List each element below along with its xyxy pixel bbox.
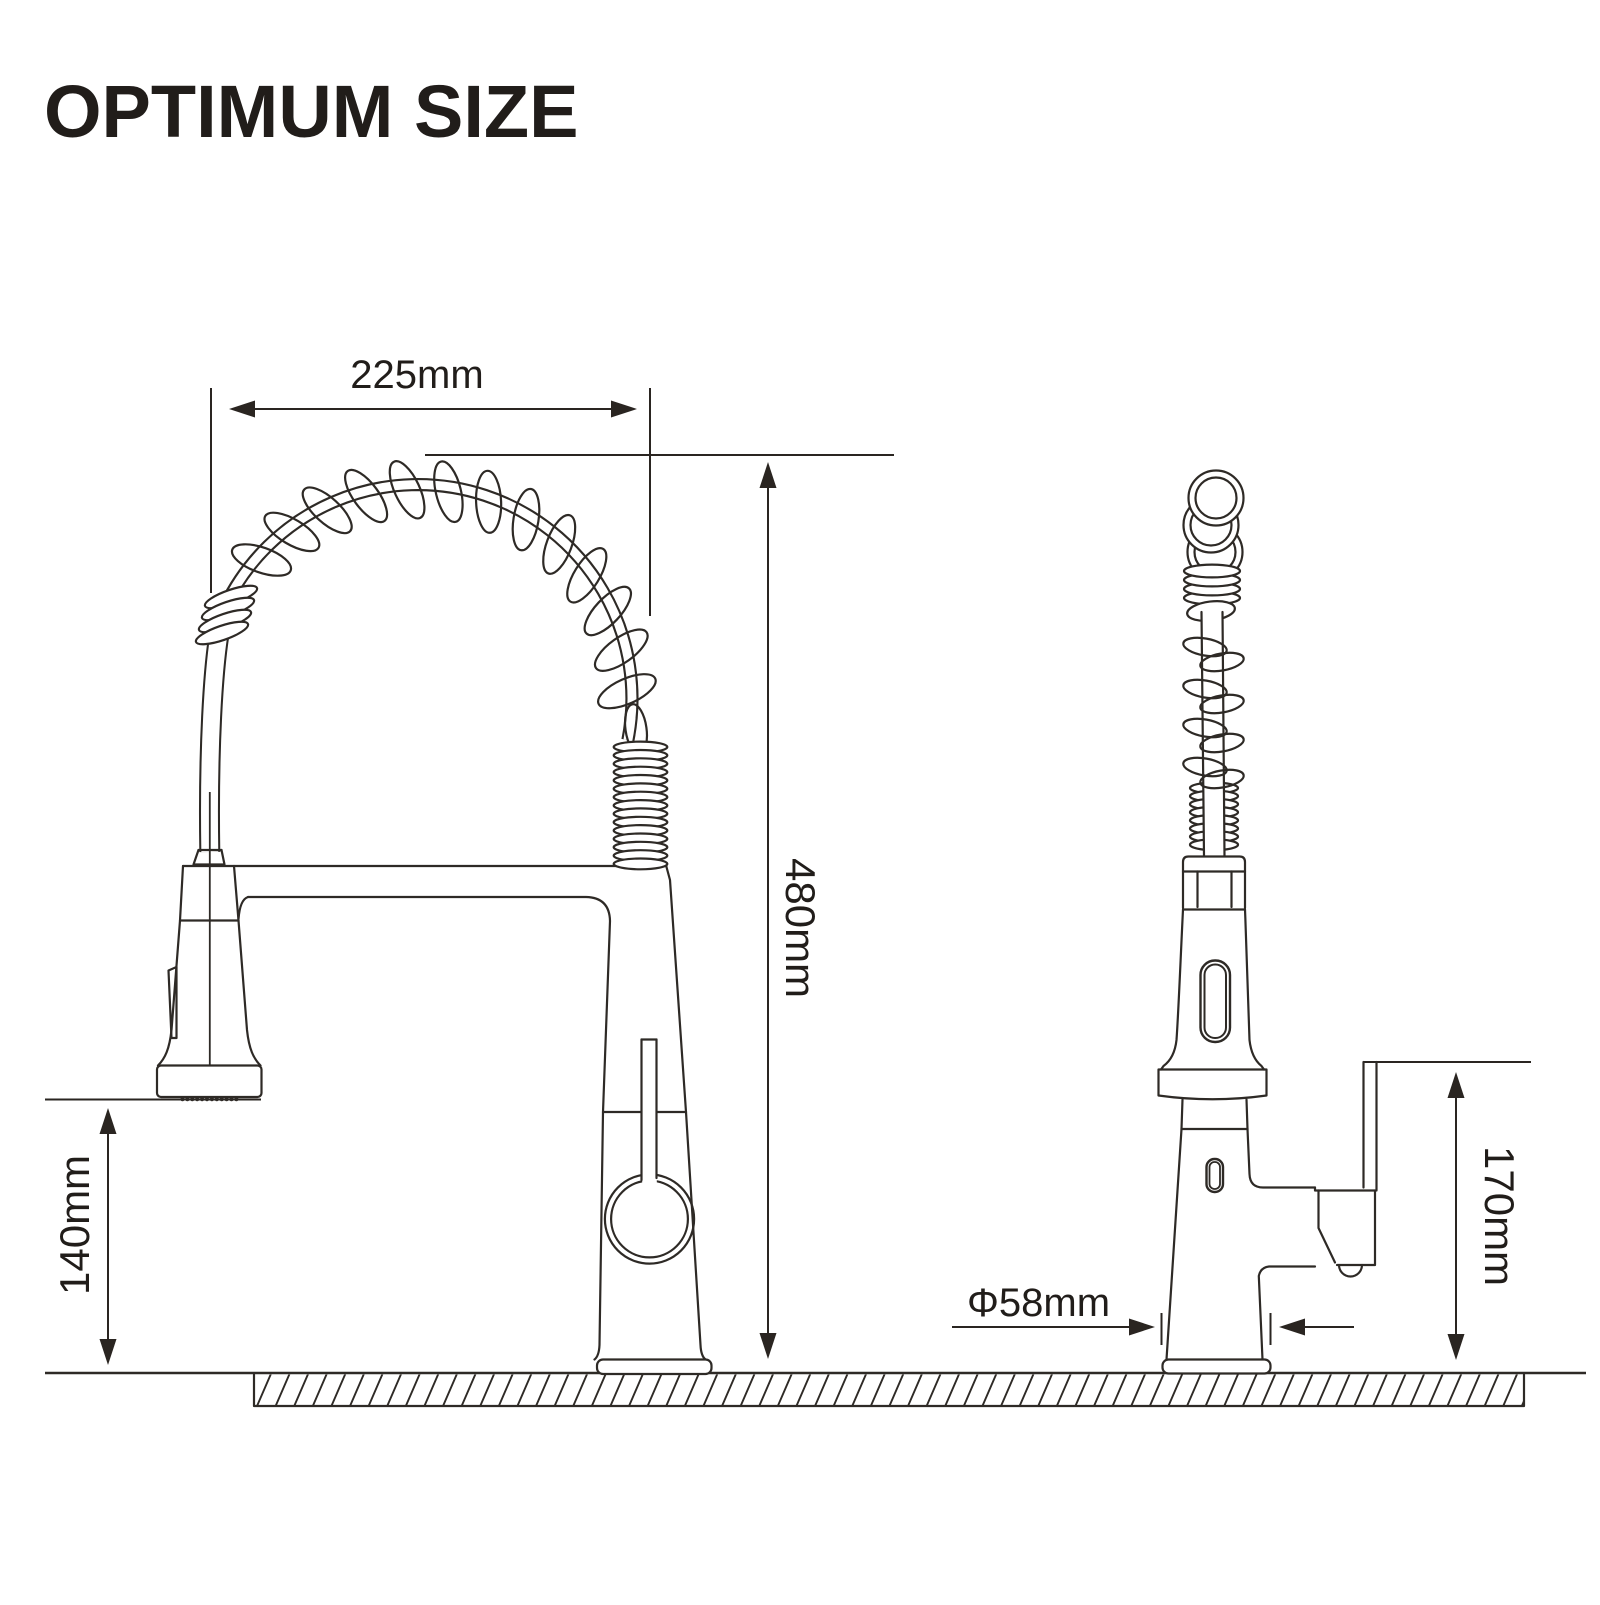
svg-text:Φ58mm: Φ58mm bbox=[967, 1281, 1110, 1325]
svg-text:225mm: 225mm bbox=[350, 353, 483, 397]
svg-text:OPTIMUM SIZE: OPTIMUM SIZE bbox=[44, 70, 578, 153]
svg-text:170mm: 170mm bbox=[1476, 1146, 1523, 1286]
svg-text:480mm: 480mm bbox=[777, 858, 824, 998]
svg-text:140mm: 140mm bbox=[51, 1155, 98, 1295]
